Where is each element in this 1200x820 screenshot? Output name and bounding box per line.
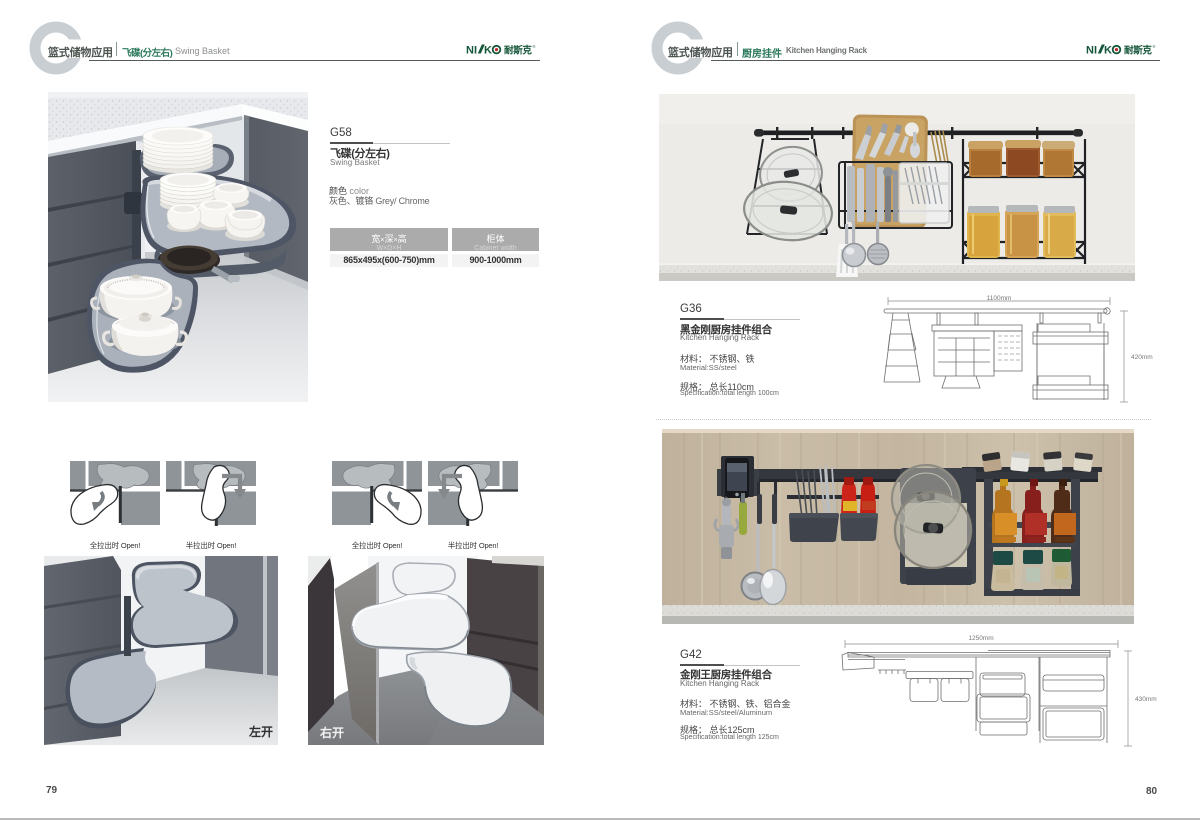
svg-text:耐斯克: 耐斯克 [1124, 45, 1152, 57]
svg-text:耐斯克: 耐斯克 [504, 45, 532, 57]
svg-text:NI: NI [466, 45, 477, 57]
svg-text:右开: 右开 [319, 725, 344, 740]
svg-text:®: ® [1153, 44, 1156, 49]
svg-text:K: K [484, 45, 492, 57]
svg-text:1100mm: 1100mm [987, 295, 1012, 302]
svg-text:NI: NI [1086, 45, 1097, 57]
svg-text:1250mm: 1250mm [968, 635, 993, 642]
svg-text:®: ® [533, 44, 536, 49]
svg-text:K: K [1104, 45, 1112, 57]
svg-text:430mm: 430mm [1135, 696, 1157, 703]
svg-text:左开: 左开 [248, 724, 273, 739]
svg-text:420mm: 420mm [1131, 354, 1153, 361]
